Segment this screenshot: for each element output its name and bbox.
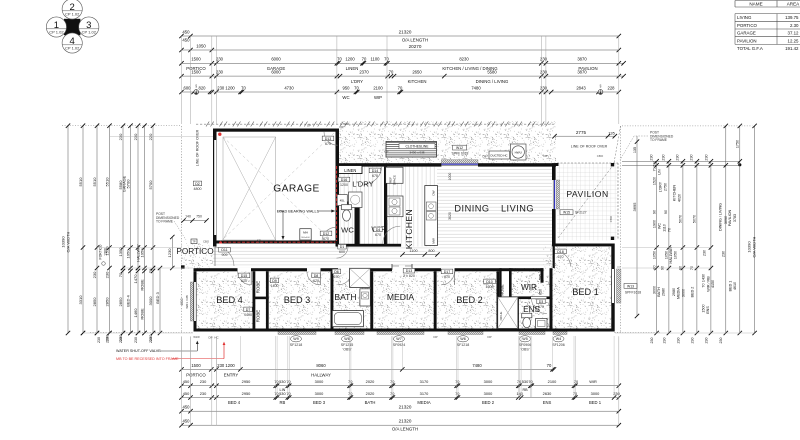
svg-text:5510: 5510 <box>104 177 109 187</box>
svg-text:BED 4: BED 4 <box>125 294 130 306</box>
svg-text:3310: 3310 <box>78 295 83 305</box>
svg-text:PORTICO: PORTICO <box>737 23 758 28</box>
svg-text:450: 450 <box>183 391 190 396</box>
svg-text:3695: 3695 <box>632 202 637 212</box>
svg-text:DP: DP <box>482 155 486 159</box>
svg-text:70: 70 <box>241 85 246 90</box>
svg-text:135: 135 <box>608 131 615 136</box>
svg-text:3000: 3000 <box>148 296 153 306</box>
svg-text:1430: 1430 <box>702 274 706 282</box>
svg-text:45L: 45L <box>340 199 345 203</box>
svg-text:228: 228 <box>608 85 616 90</box>
svg-text:670: 670 <box>323 237 329 241</box>
svg-text:RB: RB <box>522 388 528 392</box>
svg-text:W7: W7 <box>396 337 401 341</box>
svg-text:D13: D13 <box>406 269 413 273</box>
svg-text:1050: 1050 <box>673 251 677 259</box>
svg-text:1110: 1110 <box>662 224 666 232</box>
svg-text:D9: D9 <box>272 279 277 283</box>
svg-text:1750: 1750 <box>735 140 739 148</box>
svg-text:LINE OF ROOF OVER: LINE OF ROOF OVER <box>196 129 200 166</box>
svg-text:D18: D18 <box>557 250 564 254</box>
svg-text:BED 3: BED 3 <box>284 295 311 305</box>
svg-text:1100: 1100 <box>409 249 417 253</box>
svg-text:D17: D17 <box>444 270 451 274</box>
svg-text:CP 1.02: CP 1.02 <box>65 12 80 17</box>
svg-text:BED 1: BED 1 <box>728 281 732 292</box>
svg-text:DP: DP <box>543 154 547 158</box>
svg-text:SF1206: SF1206 <box>552 343 565 347</box>
svg-text:HALLWAY: HALLWAY <box>136 244 140 262</box>
svg-text:TO FRAME: TO FRAME <box>650 138 668 142</box>
svg-text:§: § <box>195 84 197 88</box>
svg-text:W4: W4 <box>556 337 561 341</box>
svg-text:‘OBS’: ‘OBS’ <box>520 347 529 351</box>
svg-text:ENS: ENS <box>543 400 552 405</box>
svg-text:70: 70 <box>652 265 656 269</box>
svg-text:1050: 1050 <box>125 249 130 259</box>
svg-text:230: 230 <box>676 338 680 344</box>
svg-text:2370: 2370 <box>359 70 369 75</box>
svg-text:2850: 2850 <box>104 297 109 307</box>
svg-text:450: 450 <box>182 38 190 43</box>
svg-text:DINING / LIVING: DINING / LIVING <box>476 79 509 84</box>
svg-text:230: 230 <box>97 337 101 343</box>
svg-text:D13: D13 <box>325 137 332 141</box>
svg-text:21320: 21320 <box>399 419 412 424</box>
svg-text:MW: MW <box>432 238 436 243</box>
svg-text:BED 2: BED 2 <box>456 295 483 305</box>
svg-text:2980: 2980 <box>662 288 666 296</box>
svg-text:820: 820 <box>199 85 207 90</box>
svg-text:LIVING: LIVING <box>501 203 534 213</box>
svg-text:CP 1.02: CP 1.02 <box>82 30 97 35</box>
svg-text:SF1218: SF1218 <box>290 343 303 347</box>
svg-text:3170: 3170 <box>420 379 429 384</box>
svg-text:230: 230 <box>119 337 123 343</box>
svg-text:230: 230 <box>649 154 653 160</box>
svg-text:3000: 3000 <box>591 391 600 396</box>
svg-text:8230: 8230 <box>459 57 469 62</box>
svg-text:§: § <box>600 84 602 88</box>
svg-text:1460: 1460 <box>133 308 138 318</box>
svg-text:670: 670 <box>325 142 331 146</box>
svg-text:PAVILION: PAVILION <box>566 189 608 199</box>
svg-text:135: 135 <box>633 147 637 153</box>
svg-text:SPACE: SPACE <box>393 175 397 185</box>
svg-text:W12: W12 <box>456 146 463 150</box>
svg-text:7480: 7480 <box>471 85 481 90</box>
svg-text:230: 230 <box>149 337 153 343</box>
svg-text:230: 230 <box>216 70 224 75</box>
svg-text:450: 450 <box>183 419 191 424</box>
svg-text:KITCHEN: KITCHEN <box>404 209 414 249</box>
svg-text:MEDIA: MEDIA <box>677 287 681 299</box>
svg-text:SPFF 6018: SPFF 6018 <box>452 152 469 156</box>
svg-text:PAVILION: PAVILION <box>728 209 732 226</box>
svg-text:230: 230 <box>719 338 723 344</box>
svg-text:4800: 4800 <box>194 187 202 191</box>
svg-text:230: 230 <box>704 338 708 344</box>
svg-text:230: 230 <box>676 154 680 160</box>
svg-text:450: 450 <box>183 379 190 384</box>
svg-text:670: 670 <box>375 233 381 237</box>
svg-text:21320: 21320 <box>399 29 412 34</box>
svg-text:MEDIA: MEDIA <box>387 292 414 302</box>
svg-text:BED 2: BED 2 <box>690 287 694 298</box>
svg-text:HWU: HWU <box>515 150 522 154</box>
svg-text:NICHE: NICHE <box>499 312 503 321</box>
svg-text:WIR: WIR <box>589 379 597 384</box>
svg-text:L’DRY: L’DRY <box>352 180 373 189</box>
svg-text:BED 2: BED 2 <box>482 400 495 405</box>
svg-text:6000: 6000 <box>271 70 281 75</box>
svg-text:WIP: WIP <box>374 95 382 100</box>
svg-text:4610: 4610 <box>733 282 737 290</box>
svg-text:CP 1.02: CP 1.02 <box>65 46 80 51</box>
svg-text:1900: 1900 <box>652 220 656 228</box>
svg-text:D2: D2 <box>195 182 200 186</box>
svg-text:GARAGE: GARAGE <box>273 184 320 195</box>
svg-text:1100: 1100 <box>370 57 380 62</box>
svg-text:W5: W5 <box>522 337 527 341</box>
svg-text:5700: 5700 <box>148 180 153 190</box>
svg-text:230: 230 <box>200 379 207 384</box>
svg-text:2980: 2980 <box>672 288 676 296</box>
svg-text:DP: DP <box>433 335 437 339</box>
svg-text:2100: 2100 <box>548 379 557 384</box>
svg-text:230: 230 <box>662 154 666 160</box>
svg-text:5070: 5070 <box>679 215 683 223</box>
svg-text:2.30: 2.30 <box>790 23 799 28</box>
svg-text:670: 670 <box>372 174 378 178</box>
svg-text:DP: DP <box>384 150 388 154</box>
svg-text:3000: 3000 <box>681 289 685 297</box>
svg-text:CBO: CBO <box>609 215 613 222</box>
svg-text:L’DRY: L’DRY <box>351 79 363 84</box>
svg-text:GARAGE: GARAGE <box>737 31 756 36</box>
svg-text:670: 670 <box>313 279 319 283</box>
svg-text:HALLWAY: HALLWAY <box>669 246 673 263</box>
svg-text:2775: 2775 <box>576 130 587 135</box>
svg-text:5510: 5510 <box>78 177 83 187</box>
svg-text:140: 140 <box>185 215 191 219</box>
svg-text:230 1200: 230 1200 <box>217 363 235 368</box>
svg-text:3870: 3870 <box>577 70 587 75</box>
svg-text:3870: 3870 <box>577 57 587 62</box>
svg-text:670: 670 <box>558 255 564 259</box>
svg-text:ROBE: ROBE <box>500 284 505 296</box>
svg-text:BED 1: BED 1 <box>572 287 599 297</box>
svg-text:230: 230 <box>613 391 620 396</box>
svg-text:WR1 / RB: WR1 / RB <box>185 295 189 308</box>
svg-text:5070: 5070 <box>693 215 697 223</box>
svg-text:PORTICO: PORTICO <box>186 372 206 377</box>
svg-text:230: 230 <box>92 271 97 278</box>
svg-text:595: 595 <box>539 274 543 280</box>
svg-text:70: 70 <box>667 228 671 232</box>
svg-text:W13: W13 <box>627 284 634 288</box>
svg-text:230: 230 <box>721 251 725 257</box>
svg-text:1050: 1050 <box>664 251 668 259</box>
svg-text:BED 4: BED 4 <box>216 295 243 305</box>
svg-text:2 x 820: 2 x 820 <box>403 274 415 278</box>
svg-text:WC: WC <box>342 95 349 100</box>
svg-text:DINING: DINING <box>454 203 489 213</box>
svg-text:2850: 2850 <box>92 297 97 307</box>
svg-text:CBO: CBO <box>597 154 604 158</box>
svg-text:TP: TP <box>192 240 196 244</box>
svg-text:70: 70 <box>362 57 367 62</box>
svg-text:2850: 2850 <box>118 297 123 307</box>
svg-text:MH: MH <box>303 231 308 235</box>
svg-text:70: 70 <box>702 283 706 287</box>
svg-text:6000: 6000 <box>271 57 281 62</box>
svg-text:5510: 5510 <box>92 177 97 187</box>
svg-text:90: 90 <box>664 210 668 214</box>
svg-text:1000: 1000 <box>448 173 452 181</box>
svg-text:W9: W9 <box>293 337 298 341</box>
svg-text:D7: D7 <box>246 308 251 312</box>
svg-text:230: 230 <box>104 271 109 278</box>
svg-text:3000: 3000 <box>484 379 493 384</box>
svg-text:1050: 1050 <box>652 251 656 259</box>
svg-text:230: 230 <box>690 338 694 344</box>
svg-text:1200: 1200 <box>345 57 355 62</box>
svg-text:BED 3: BED 3 <box>313 400 326 405</box>
svg-text:70: 70 <box>118 272 123 277</box>
svg-text:D15: D15 <box>241 274 248 278</box>
svg-text:D10: D10 <box>486 280 493 284</box>
svg-text:2020: 2020 <box>366 379 375 384</box>
svg-text:2843: 2843 <box>576 85 586 90</box>
svg-text:21320: 21320 <box>399 405 412 410</box>
svg-text:3783: 3783 <box>733 214 737 222</box>
svg-text:70: 70 <box>398 85 403 90</box>
svg-text:D12: D12 <box>323 232 330 236</box>
svg-text:12.25: 12.25 <box>788 38 800 43</box>
svg-text:3020: 3020 <box>448 212 452 220</box>
svg-text:230: 230 <box>106 337 110 343</box>
svg-text:2650: 2650 <box>412 70 422 75</box>
svg-text:37.12: 37.12 <box>788 31 800 36</box>
svg-text:4020: 4020 <box>678 194 682 202</box>
svg-text:SF1218: SF1218 <box>457 343 470 347</box>
svg-text:PAVILION: PAVILION <box>737 38 757 43</box>
svg-text:SF2127: SF2127 <box>575 211 587 215</box>
svg-text:DINING / LIVING: DINING / LIVING <box>719 203 723 231</box>
svg-text:70: 70 <box>354 85 359 90</box>
svg-text:LINEN: LINEN <box>346 66 359 71</box>
svg-text:70: 70 <box>337 57 342 62</box>
svg-text:2950: 2950 <box>242 379 251 384</box>
svg-text:1300: 1300 <box>103 248 107 256</box>
svg-text:SPFF1618: SPFF1618 <box>625 291 641 295</box>
svg-text:600: 600 <box>339 250 345 254</box>
svg-text:W1W: W1W <box>193 335 200 339</box>
svg-text:70: 70 <box>389 70 394 75</box>
svg-text:MB TO BE RECESSED INTO FRAME: MB TO BE RECESSED INTO FRAME <box>116 357 179 361</box>
svg-text:140: 140 <box>516 391 523 396</box>
svg-text:2750: 2750 <box>663 183 667 191</box>
svg-text:230: 230 <box>662 338 666 344</box>
svg-text:230: 230 <box>200 391 207 396</box>
svg-text:7480: 7480 <box>472 363 482 368</box>
svg-text:LIN: LIN <box>657 169 661 175</box>
svg-text:800: 800 <box>428 249 434 253</box>
svg-text:1200: 1200 <box>340 183 348 187</box>
svg-text:D16: D16 <box>341 178 348 182</box>
svg-text:1400: 1400 <box>271 284 279 288</box>
svg-text:670: 670 <box>241 279 247 283</box>
svg-text:L’DRY: L’DRY <box>659 181 663 192</box>
svg-text:230: 230 <box>650 338 654 344</box>
svg-text:‘OBS’: ‘OBS’ <box>342 347 351 351</box>
svg-text:1230: 1230 <box>167 248 172 258</box>
svg-text:RB: RB <box>279 400 285 405</box>
svg-text:909: 909 <box>222 253 228 257</box>
svg-text:SF0924: SF0924 <box>393 343 406 347</box>
svg-text:BATH: BATH <box>657 287 661 297</box>
svg-text:139.75: 139.75 <box>785 15 799 20</box>
svg-text:WATER SHUT-OFF VALVE: WATER SHUT-OFF VALVE <box>116 349 161 353</box>
svg-text:230: 230 <box>216 57 224 62</box>
svg-text:850: 850 <box>539 289 543 295</box>
svg-text:KITCHEN: KITCHEN <box>673 185 677 202</box>
svg-text:3490 x 935: 3490 x 935 <box>409 150 425 154</box>
svg-text:670: 670 <box>444 275 450 279</box>
svg-text:1500: 1500 <box>191 363 201 368</box>
svg-text:NAME: NAME <box>749 1 762 6</box>
svg-text:3170: 3170 <box>420 391 429 396</box>
svg-text:2020: 2020 <box>366 391 375 396</box>
svg-text:4150: 4150 <box>711 280 715 288</box>
svg-text:600: 600 <box>184 85 192 90</box>
svg-text:2630: 2630 <box>543 391 552 396</box>
svg-text:ROBE: ROBE <box>139 308 144 320</box>
svg-text:ROBE: ROBE <box>255 310 260 323</box>
svg-text:LIVING: LIVING <box>737 15 752 20</box>
svg-text:GARAGE: GARAGE <box>122 175 126 192</box>
svg-text:W15: W15 <box>563 211 570 215</box>
svg-text:20270: 20270 <box>409 44 422 49</box>
svg-text:BATH: BATH <box>365 400 376 405</box>
svg-text:70: 70 <box>547 363 552 368</box>
svg-text:D6: D6 <box>334 270 339 274</box>
svg-text:TOP: TOP <box>343 122 349 126</box>
svg-text:950: 950 <box>343 85 351 90</box>
svg-text:230 1200: 230 1200 <box>217 85 235 90</box>
svg-text:230: 230 <box>703 250 707 256</box>
svg-text:ENTRY: ENTRY <box>224 372 239 377</box>
svg-text:DP: DP <box>339 125 343 129</box>
svg-text:TO FRAME: TO FRAME <box>156 220 174 224</box>
svg-text:4730: 4730 <box>284 85 294 90</box>
svg-text:O/A LENGTH: O/A LENGTH <box>402 37 428 42</box>
svg-text:1600: 1600 <box>486 285 494 289</box>
svg-text:KITCHEN: KITCHEN <box>408 79 427 84</box>
svg-text:BED 1: BED 1 <box>589 400 602 405</box>
svg-text:5580: 5580 <box>487 70 497 75</box>
svg-text:ROBE: ROBE <box>255 281 260 294</box>
svg-text:WC: WC <box>341 226 354 235</box>
svg-text:8060: 8060 <box>316 363 326 368</box>
svg-text:230: 230 <box>134 337 138 343</box>
svg-text:3000: 3000 <box>315 379 324 384</box>
svg-text:D3: D3 <box>539 300 544 304</box>
svg-text:3000: 3000 <box>652 286 656 294</box>
svg-text:CLOTHESLINE: CLOTHESLINE <box>406 145 430 149</box>
svg-text:WIR / RB: WIR / RB <box>706 276 710 292</box>
svg-text:1050: 1050 <box>196 43 206 48</box>
svg-text:670: 670 <box>538 305 544 309</box>
svg-text:2100: 2100 <box>373 85 383 90</box>
svg-text:WC: WC <box>658 223 662 229</box>
svg-text:DW: DW <box>432 190 436 195</box>
svg-text:HALLWAY: HALLWAY <box>311 372 331 377</box>
svg-text:PORTICO: PORTICO <box>99 244 103 259</box>
svg-text:ENS: ENS <box>706 306 710 314</box>
svg-text:1500: 1500 <box>191 57 201 62</box>
svg-text:MEDIA: MEDIA <box>417 400 430 405</box>
svg-text:WIR: WIR <box>521 283 537 292</box>
svg-text:230: 230 <box>690 154 694 160</box>
svg-text:1500: 1500 <box>702 304 706 312</box>
svg-text:D4: D4 <box>376 228 381 232</box>
svg-text:PORTICO: PORTICO <box>176 247 213 256</box>
svg-text:670: 670 <box>334 275 340 279</box>
svg-text:TOTAL G.F.A: TOTAL G.F.A <box>737 46 763 51</box>
svg-text:LINE OF ROOF OVER: LINE OF ROOF OVER <box>571 145 608 149</box>
svg-text:4010: 4010 <box>180 298 184 305</box>
svg-text:AREA: AREA <box>787 1 800 6</box>
svg-text:DP: DP <box>307 124 311 128</box>
svg-text:O/A WIDTH: O/A WIDTH <box>752 236 757 257</box>
svg-text:D1: D1 <box>340 245 345 249</box>
svg-text:DUCTED HC: DUCTED HC <box>490 154 507 158</box>
svg-text:ROBE: ROBE <box>139 279 144 291</box>
svg-text:3000: 3000 <box>484 391 493 396</box>
svg-text:1400: 1400 <box>244 313 252 317</box>
svg-text:1520: 1520 <box>652 177 656 185</box>
svg-text:O/A LENGTH: O/A LENGTH <box>392 427 418 432</box>
svg-text:90: 90 <box>652 210 656 214</box>
svg-text:BED 3: BED 3 <box>155 291 160 303</box>
svg-text:BED 4: BED 4 <box>228 400 241 405</box>
svg-text:70,530: 70,530 <box>652 161 656 171</box>
svg-text:450: 450 <box>182 29 190 34</box>
svg-text:2950: 2950 <box>242 391 251 396</box>
svg-text:D14: D14 <box>372 169 379 173</box>
svg-text:D11: D11 <box>221 248 227 252</box>
svg-text:CP 1.02: CP 1.02 <box>49 30 64 35</box>
svg-text:DP: DP <box>487 335 491 339</box>
svg-text:450: 450 <box>183 405 191 410</box>
svg-text:W6: W6 <box>460 337 465 341</box>
svg-text:1470: 1470 <box>133 274 138 284</box>
svg-text:LINEN: LINEN <box>344 168 356 173</box>
svg-text:230: 230 <box>704 154 708 160</box>
svg-text:D8: D8 <box>314 274 319 278</box>
svg-text:3000: 3000 <box>315 391 324 396</box>
svg-text:1500: 1500 <box>191 70 201 75</box>
svg-text:CBO: CBO <box>203 240 210 244</box>
svg-text:W8: W8 <box>344 337 349 341</box>
svg-text:750: 750 <box>196 215 202 219</box>
svg-text:BATH: BATH <box>334 292 356 302</box>
svg-text:191.42: 191.42 <box>785 46 799 51</box>
svg-text:900x600: 900x600 <box>301 237 310 239</box>
